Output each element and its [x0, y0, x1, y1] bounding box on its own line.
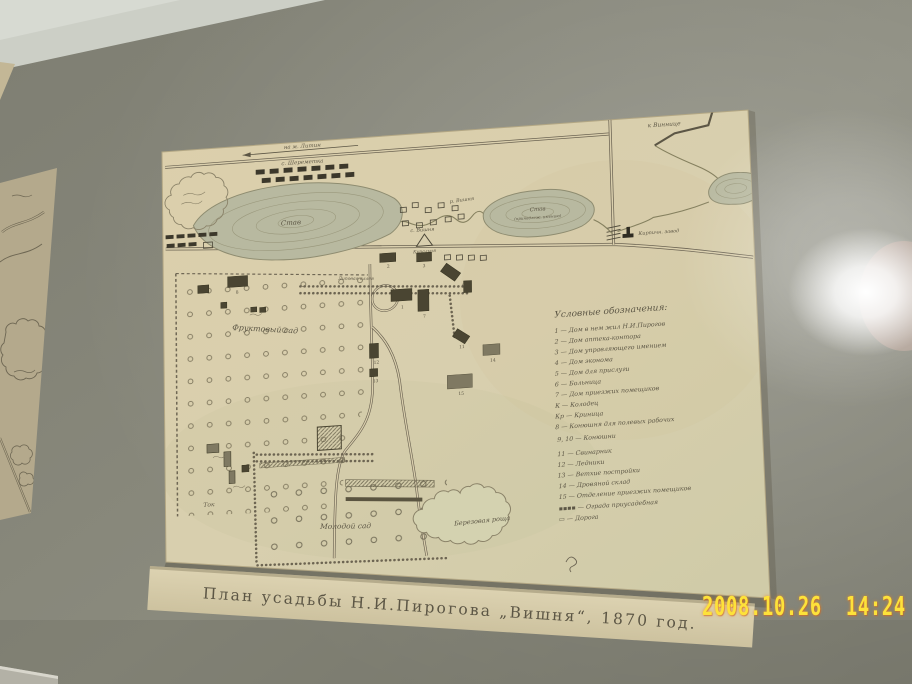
pond-big-label: Став	[281, 218, 301, 227]
pond-estate-label-1: Став	[530, 206, 546, 213]
alley-label: Липовая аллея	[337, 277, 374, 282]
young-orchard-label: Молодой сад	[319, 521, 372, 531]
svg-text:7: 7	[423, 315, 426, 320]
svg-text:6: 6	[462, 284, 465, 289]
scene: Став Став (принадлеж. имению)	[0, 0, 912, 684]
svg-text:14: 14	[490, 358, 496, 363]
map-sheet: Став Став (принадлеж. имению)	[160, 105, 780, 598]
svg-text:11: 11	[459, 345, 465, 350]
svg-text:1: 1	[401, 305, 404, 310]
svg-text:3: 3	[423, 264, 426, 269]
svg-text:2: 2	[387, 265, 390, 270]
svg-text:13: 13	[373, 379, 379, 384]
photo-canvas: Став Став (принадлеж. имению)	[0, 0, 912, 684]
camera-timestamp: 2008.10.26 14:24	[702, 592, 906, 622]
svg-text:8: 8	[236, 291, 239, 296]
tok-label: Ток	[203, 502, 215, 509]
svg-text:15: 15	[458, 392, 464, 397]
svg-text:12: 12	[374, 361, 380, 366]
